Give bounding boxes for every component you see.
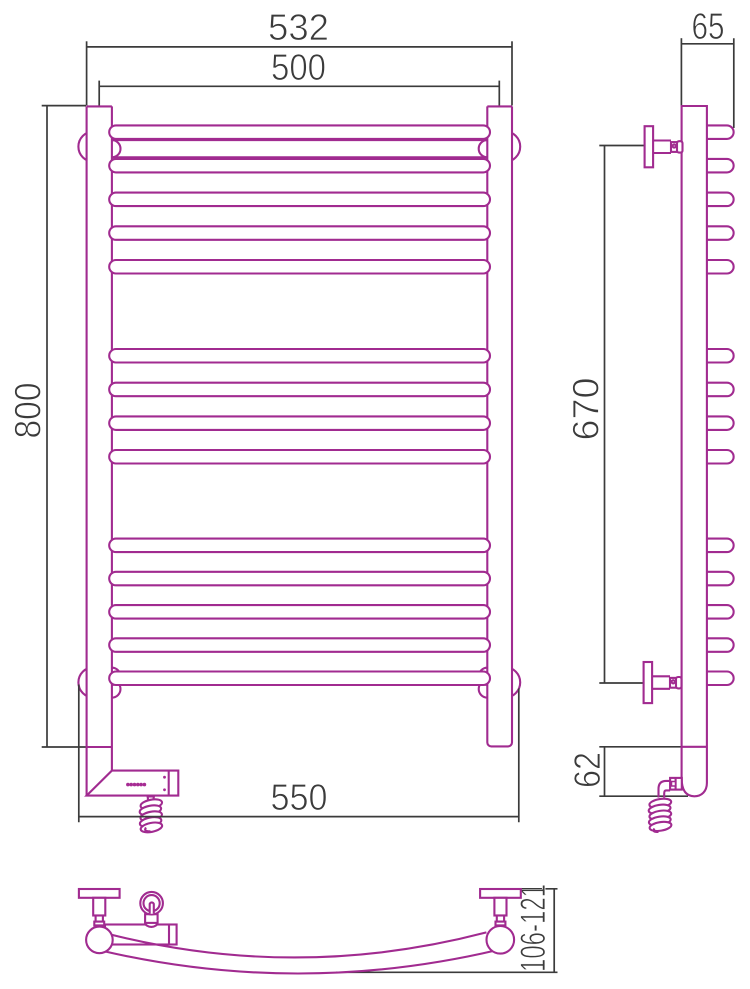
svg-text:550: 550 — [271, 777, 328, 818]
svg-text:670: 670 — [566, 378, 607, 441]
svg-text:800: 800 — [8, 383, 49, 439]
svg-text:62: 62 — [567, 752, 608, 788]
svg-text:532: 532 — [268, 7, 329, 48]
svg-text:65: 65 — [692, 6, 725, 47]
svg-text:500: 500 — [271, 47, 326, 88]
